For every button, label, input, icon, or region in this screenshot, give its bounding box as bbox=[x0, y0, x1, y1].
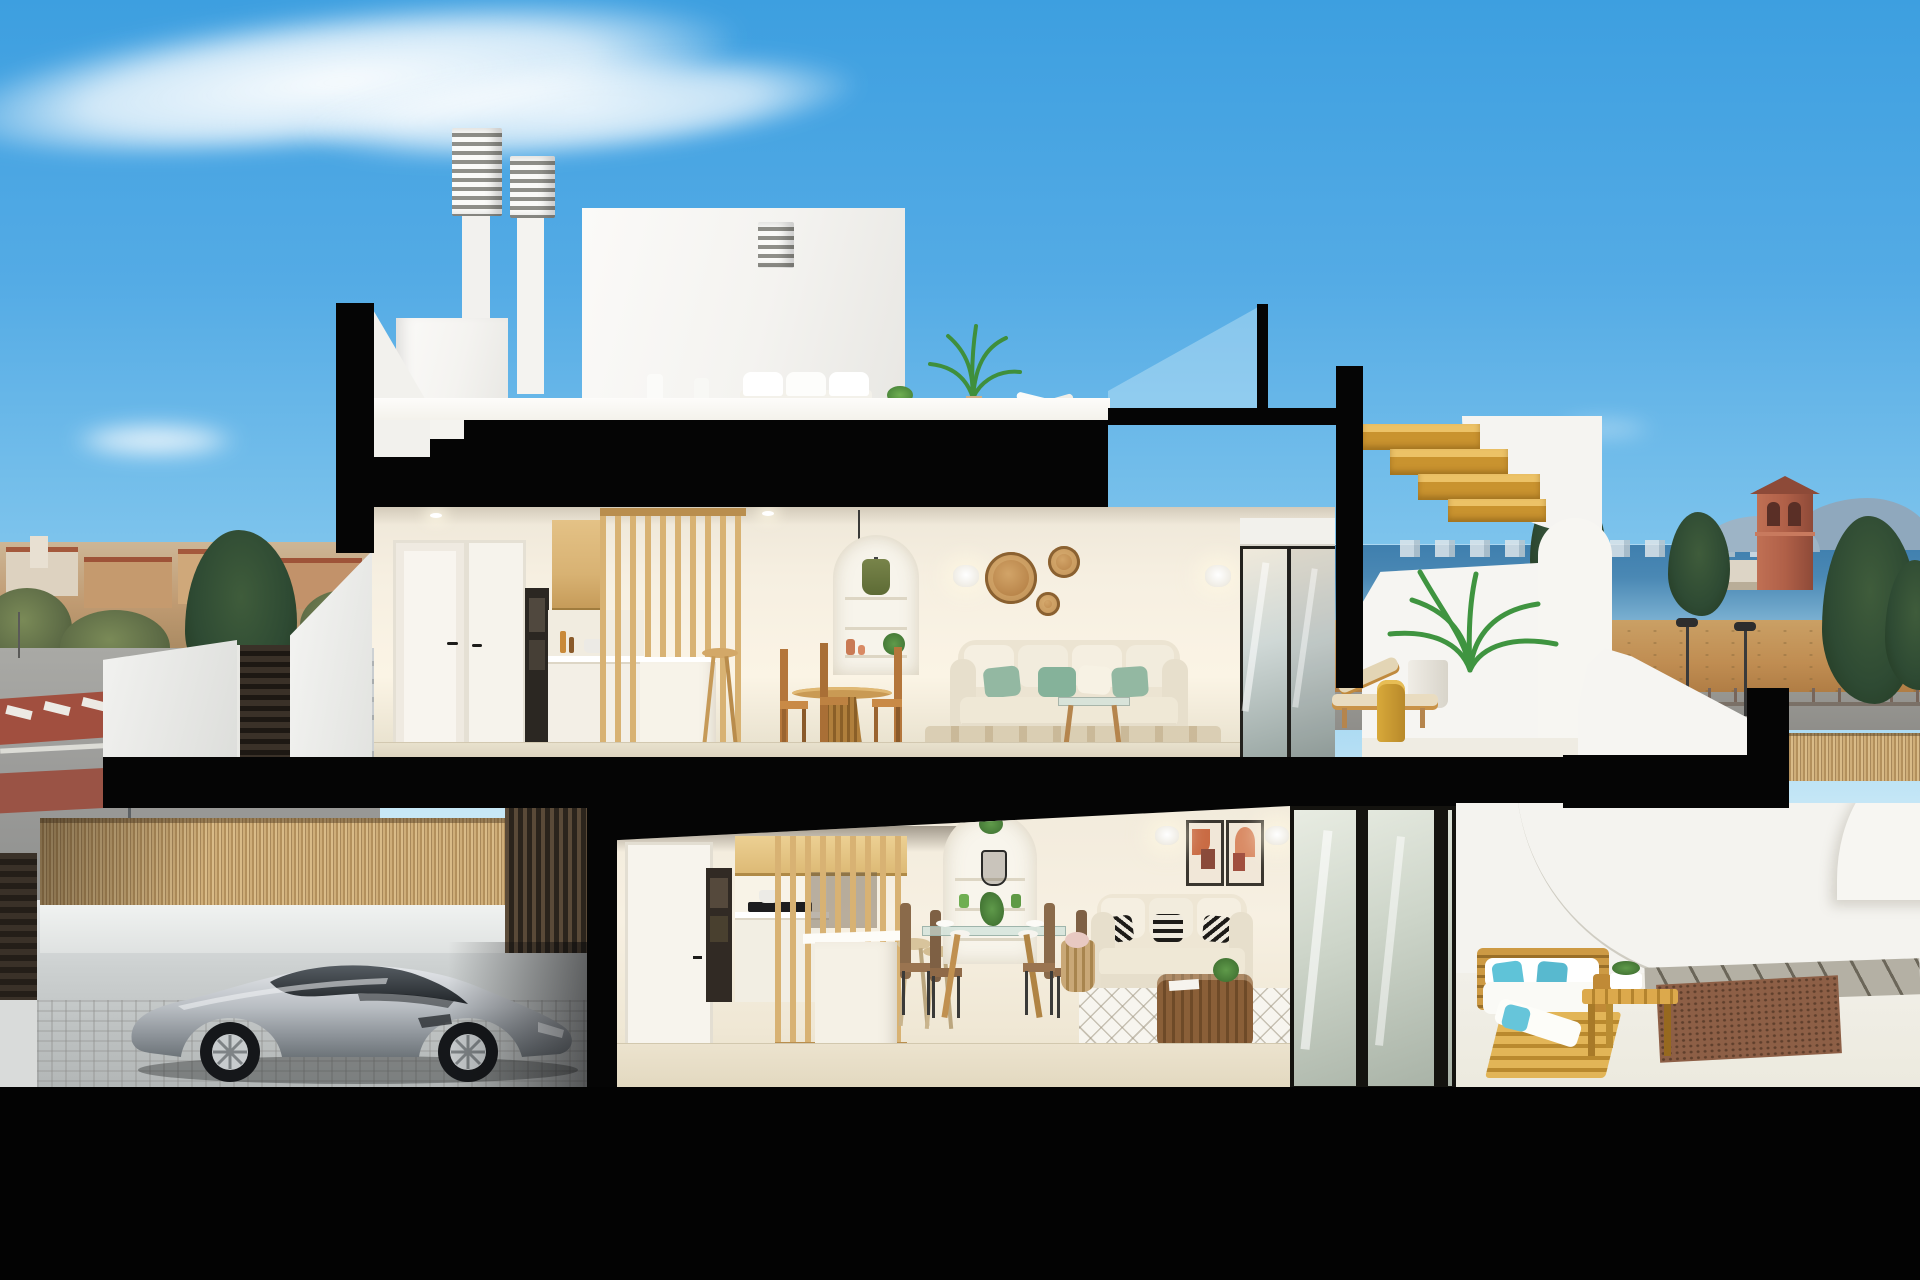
town-building bbox=[84, 562, 172, 608]
lounger-leg bbox=[1420, 708, 1425, 728]
oven-screen bbox=[529, 598, 545, 632]
upper-floor-tiles bbox=[372, 743, 1335, 757]
bench-leg bbox=[1588, 1004, 1595, 1056]
counter-bottles bbox=[560, 631, 566, 653]
cloud-small-left bbox=[70, 422, 240, 456]
niche-shelf bbox=[845, 627, 907, 630]
rattan-coffee-table bbox=[1157, 974, 1253, 1048]
chair-leg bbox=[902, 971, 905, 1015]
plate bbox=[936, 920, 954, 927]
wood-stair-step bbox=[1418, 474, 1540, 500]
watchtower-roof bbox=[1750, 476, 1820, 494]
roof-glass-railing bbox=[1108, 306, 1260, 424]
chair-leg bbox=[1057, 976, 1060, 1018]
section-cut-floor-slab-left bbox=[103, 757, 617, 808]
watchtower bbox=[1757, 490, 1813, 590]
rattan-wall-plate bbox=[985, 552, 1037, 604]
street-lamp-head bbox=[1676, 618, 1698, 627]
stool-leg bbox=[702, 656, 715, 744]
section-cut-corner-post bbox=[1336, 366, 1363, 688]
upper-sliding-door bbox=[1240, 518, 1335, 757]
oven-column bbox=[525, 588, 549, 756]
dining-chair bbox=[820, 643, 850, 743]
patterned-pillow bbox=[1153, 914, 1183, 942]
chair-seat bbox=[820, 697, 848, 705]
left-wall bbox=[0, 1000, 37, 1090]
sofa-cushion bbox=[743, 372, 783, 396]
watchtower-window bbox=[1788, 502, 1801, 526]
wall-sconce bbox=[1265, 826, 1289, 845]
exterior-stair-lower-parapet bbox=[103, 640, 237, 757]
dining-chair-brown bbox=[1021, 903, 1055, 1019]
bar-stool bbox=[702, 648, 738, 748]
glass-reflection bbox=[1301, 830, 1333, 1050]
wall-sconce bbox=[1155, 826, 1179, 845]
green-pillow bbox=[1111, 666, 1149, 698]
wire-pendant-lamp bbox=[981, 850, 1007, 886]
oven-column bbox=[706, 868, 732, 1002]
chimney bbox=[462, 210, 490, 324]
entry-door bbox=[393, 540, 467, 757]
section-cut-slab-right bbox=[1563, 755, 1789, 808]
chair-seat bbox=[872, 699, 902, 707]
watchtower-balcony bbox=[1755, 532, 1815, 536]
section-cut-garage-divider bbox=[587, 757, 617, 1090]
cream-pillow bbox=[1077, 665, 1112, 696]
bench-planter bbox=[1610, 973, 1642, 989]
ceiling-spotlight bbox=[762, 511, 774, 516]
green-pendant-lamp bbox=[862, 559, 890, 595]
glass-railing-post bbox=[1257, 304, 1268, 422]
bench-leg bbox=[1606, 1004, 1613, 1048]
table-book bbox=[1169, 979, 1200, 991]
green-pillow bbox=[1038, 667, 1076, 697]
oven-screen bbox=[710, 916, 728, 942]
table-leg bbox=[1112, 705, 1122, 745]
foreground-black-base bbox=[0, 1087, 1920, 1280]
niche-succulent bbox=[1011, 894, 1021, 908]
abstract-artwork bbox=[1186, 820, 1224, 886]
wood-stair-step bbox=[1390, 449, 1508, 475]
silver-sports-coupe bbox=[118, 922, 596, 1090]
gravel-bed bbox=[1656, 975, 1842, 1062]
table-plant bbox=[1213, 958, 1239, 982]
ceiling-spotlight bbox=[430, 513, 442, 518]
lower-terrace bbox=[1456, 803, 1920, 1090]
chimney-louver-cap bbox=[510, 156, 555, 218]
basket-cloth bbox=[1065, 932, 1089, 948]
rattan-wall-plate bbox=[1036, 592, 1060, 616]
town-tower bbox=[30, 536, 48, 568]
wood-stair-step bbox=[1362, 424, 1480, 450]
terracotta-vase bbox=[858, 645, 865, 655]
wall-sconce bbox=[953, 565, 979, 587]
upper-coffee-table bbox=[1058, 697, 1128, 749]
oven-screen bbox=[529, 640, 545, 670]
oven-screen bbox=[710, 878, 728, 908]
upper-terrace bbox=[1362, 518, 1592, 757]
sofa-cushion bbox=[786, 372, 826, 396]
oak-upper-cabinets bbox=[552, 520, 602, 610]
section-cut-roof-slab bbox=[372, 420, 1108, 508]
table-wood-leg bbox=[941, 934, 960, 1018]
entry-door bbox=[466, 540, 526, 757]
chair-leg bbox=[782, 709, 786, 743]
mustard-side-table bbox=[1377, 680, 1405, 742]
wood-stair-step bbox=[1448, 499, 1546, 522]
ground-sliding-door bbox=[1290, 806, 1456, 1090]
terrace-roof-beam bbox=[1108, 408, 1340, 425]
lounger-leg bbox=[1342, 708, 1347, 728]
niche-succulent bbox=[959, 894, 969, 908]
door-mullion bbox=[1356, 810, 1368, 1086]
white-curved-bench bbox=[1837, 803, 1920, 900]
section-cut-column-left bbox=[336, 303, 374, 553]
ground-floor-tiles bbox=[617, 1044, 1290, 1090]
wall-sconce bbox=[1205, 565, 1231, 587]
storage-basket bbox=[1061, 940, 1095, 992]
abstract-artwork bbox=[1226, 820, 1264, 886]
rattan-wall-plate bbox=[1048, 546, 1080, 578]
chimney-louver-cap bbox=[452, 128, 502, 216]
entry-gate-dark-slats bbox=[237, 645, 298, 757]
chimney-louver-cap bbox=[758, 222, 794, 268]
bench-leg bbox=[1664, 1004, 1671, 1056]
street-lamp-head bbox=[1734, 622, 1756, 631]
distant-pole bbox=[18, 612, 20, 658]
art-shape bbox=[1233, 853, 1245, 871]
blind-box bbox=[1240, 518, 1335, 546]
planter-greens bbox=[1612, 961, 1640, 975]
sofa-cushion bbox=[829, 372, 869, 396]
door-handle bbox=[693, 956, 702, 959]
outdoor-bench-table bbox=[1582, 975, 1678, 1061]
watchtower-window bbox=[1767, 502, 1780, 526]
door-handle bbox=[472, 644, 482, 647]
island-bar bbox=[815, 942, 897, 1056]
table-leg bbox=[1064, 705, 1074, 745]
roof-slab-step bbox=[430, 420, 464, 439]
stool-leg bbox=[724, 656, 737, 744]
chimney bbox=[517, 216, 544, 394]
upper-floor-interior bbox=[372, 507, 1335, 757]
patterned-pillow bbox=[1202, 915, 1233, 944]
chair-leg bbox=[874, 707, 878, 743]
ceiling-shadow bbox=[372, 507, 1335, 525]
chair-leg bbox=[1025, 971, 1028, 1015]
architectural-section-render bbox=[0, 0, 1920, 1280]
ground-floor-interior bbox=[617, 806, 1290, 1090]
art-shape bbox=[1201, 849, 1215, 869]
roof-floor-edge bbox=[374, 398, 1110, 422]
dining-chair bbox=[870, 647, 902, 745]
slat-top-rail bbox=[600, 508, 746, 516]
fence-shadow bbox=[40, 818, 340, 910]
green-pillow bbox=[983, 665, 1022, 699]
roof-slab-step bbox=[372, 420, 430, 457]
counter-bottles bbox=[569, 637, 574, 653]
door-handle bbox=[447, 642, 458, 645]
stool-seat bbox=[702, 648, 738, 658]
door-mullion bbox=[1434, 810, 1448, 1086]
bench-top bbox=[1582, 989, 1678, 1004]
niche-shelf bbox=[845, 597, 907, 600]
glass-reflection bbox=[1375, 836, 1405, 1046]
chair-leg bbox=[896, 707, 900, 743]
neighbor-garage-door bbox=[0, 853, 37, 1000]
boundary-bamboo-fence bbox=[1787, 733, 1920, 781]
